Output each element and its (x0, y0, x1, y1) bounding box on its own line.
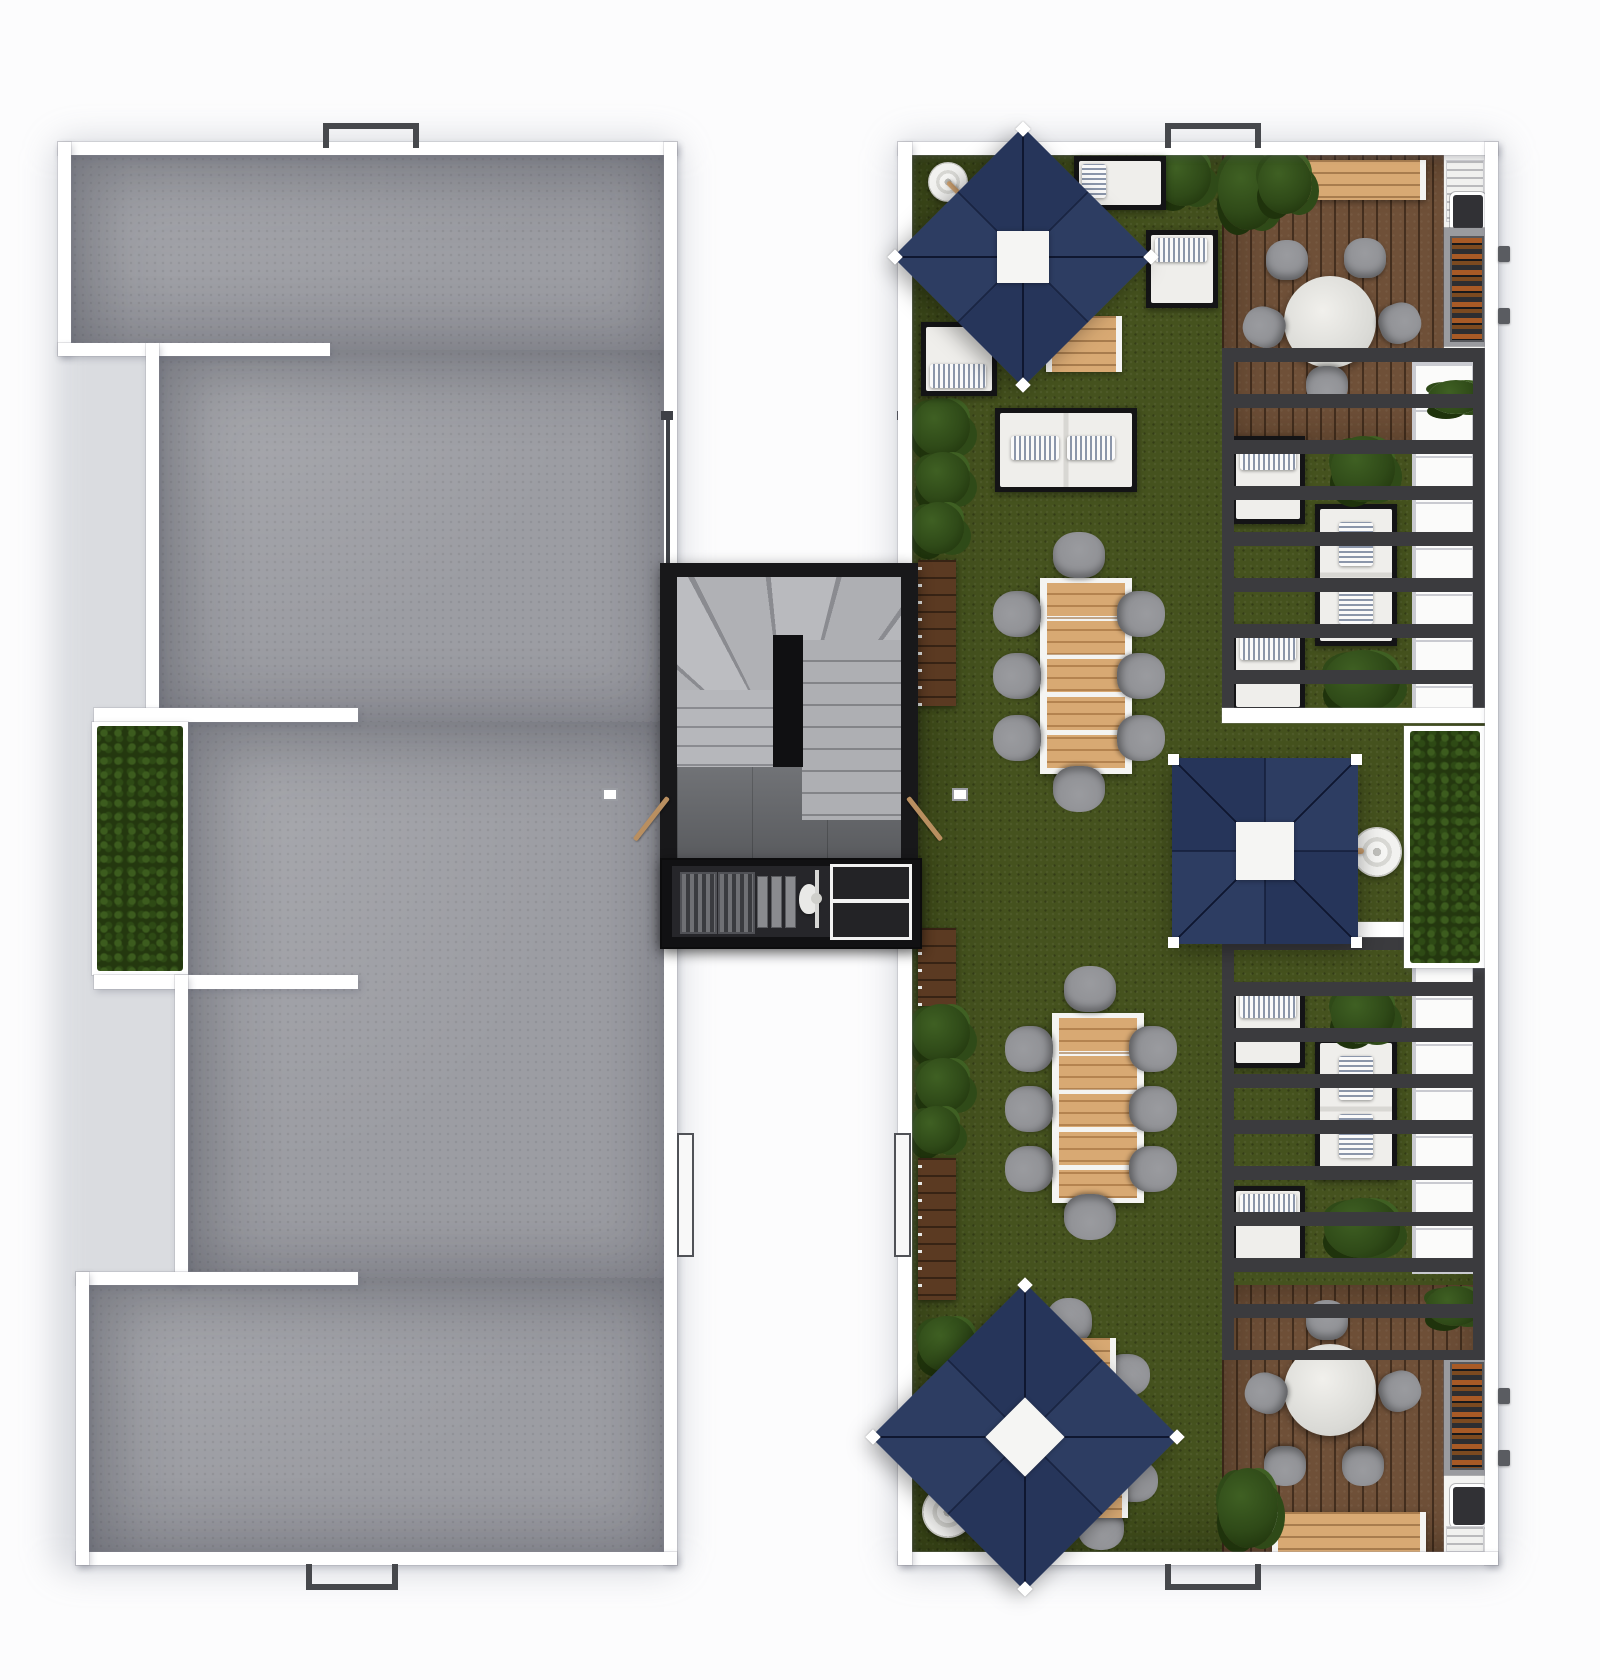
chair (1064, 966, 1116, 1012)
stair-spine-wall (773, 635, 803, 767)
planting-cluster (916, 1058, 970, 1112)
lounge-chair (1146, 230, 1218, 308)
east-building-east-wall (1485, 142, 1498, 1565)
west-building-west-wall-lower (76, 1272, 89, 1565)
grill-grate (718, 872, 755, 934)
chair (1117, 591, 1165, 637)
umbrella-tip (1168, 937, 1179, 948)
umbrella-tip (887, 249, 903, 265)
roof-hatch-marker (323, 123, 419, 148)
planting-cluster (912, 1004, 970, 1062)
chair (1005, 1146, 1053, 1192)
chair (1129, 1086, 1177, 1132)
concrete-roof-region-top (71, 155, 664, 350)
dark-wood-bench (918, 928, 956, 1006)
prep-station (830, 900, 912, 940)
roof-hatch-marker (1165, 1564, 1261, 1590)
chair (1344, 238, 1386, 278)
potted-plant (1218, 1468, 1278, 1548)
potted-plant (1258, 152, 1312, 214)
planting-cluster (912, 1106, 960, 1154)
south-deck-bench (1272, 1512, 1426, 1552)
umbrella-tip (1351, 937, 1362, 948)
chair (1064, 1194, 1116, 1240)
umbrella-vent (997, 231, 1049, 283)
south-kitchen-sink (1450, 1484, 1488, 1528)
east-hedge-planter-shrubs (1410, 731, 1480, 963)
west-hedge-planter-shrubs (97, 726, 183, 971)
west-facade-fin-1 (58, 343, 330, 356)
west-building-west-wall-3 (175, 975, 188, 1285)
umbrella-vent (985, 1397, 1064, 1476)
concrete-roof-region-bottom (89, 1278, 664, 1552)
dark-wood-bench (918, 560, 956, 706)
outdoor-loveseat (995, 408, 1137, 492)
chair (1005, 1026, 1053, 1072)
door-handle-west (602, 788, 618, 801)
lightwell-railing-west (666, 415, 670, 563)
north-pergola (1222, 348, 1485, 708)
east-facade-fitting (1498, 1388, 1510, 1404)
east-facade-fitting (1498, 308, 1510, 324)
striped-pillow (1067, 436, 1115, 460)
north-pergola-walkway (1222, 708, 1485, 723)
navy-umbrella-center (1172, 758, 1358, 944)
umbrella-tip (865, 1429, 881, 1445)
umbrella-tip (1168, 754, 1179, 765)
door-handle-east (952, 788, 968, 801)
west-facade-fin-3 (94, 975, 358, 989)
concrete-roof-region-upper (159, 350, 664, 722)
chair (1264, 1446, 1306, 1486)
planting-cluster (912, 502, 964, 554)
striped-pillow (1011, 436, 1059, 460)
grill-grate (680, 872, 717, 934)
dark-wood-bench (918, 1158, 956, 1300)
lightwell-door-west (677, 1133, 694, 1257)
umbrella-tip (1015, 121, 1031, 137)
north-kitchen-sink (1450, 192, 1486, 232)
grill-tool (757, 876, 768, 928)
chair (1129, 1146, 1177, 1192)
floorplan-canvas (0, 0, 1600, 1680)
south-pergola (1222, 936, 1485, 1360)
west-facade-fin-2 (94, 708, 358, 722)
west-facade-fin-4 (76, 1272, 358, 1285)
west-building-west-wall-2 (146, 343, 159, 722)
east-facade-fitting (1498, 1450, 1510, 1466)
chair (1053, 766, 1105, 812)
chair (1266, 240, 1308, 280)
lightwell-railing-post-west (661, 411, 673, 420)
chair (1005, 1086, 1053, 1132)
chair (993, 715, 1041, 761)
planting-cluster (916, 452, 970, 506)
chair (1053, 532, 1105, 578)
chair (1129, 1026, 1177, 1072)
west-building-west-wall-upper (58, 142, 71, 355)
lightwell-door-east (894, 1133, 911, 1257)
umbrella-tip (1351, 754, 1362, 765)
chair (1117, 715, 1165, 761)
stair-flight-left (677, 690, 775, 767)
counter-faucet-knob (811, 893, 822, 904)
grill-tool (785, 876, 796, 928)
chair (1342, 1446, 1384, 1486)
chair (1117, 653, 1165, 699)
north-bbq-grill-skewers (1450, 236, 1484, 342)
prep-station (830, 864, 912, 902)
striped-pillow (930, 364, 986, 388)
umbrella-vent (1236, 822, 1294, 880)
planting-cluster (912, 398, 970, 456)
stair-flight-right (802, 640, 901, 820)
chair (993, 653, 1041, 699)
roof-hatch-marker (1165, 123, 1261, 148)
south-bbq-grill-skewers (1450, 1362, 1484, 1470)
chair (993, 591, 1041, 637)
concrete-roof-region-mid (188, 722, 664, 1278)
grill-tool (771, 876, 782, 928)
east-facade-fitting (1498, 246, 1510, 262)
umbrella-tip (1017, 1581, 1033, 1597)
striped-pillow (1155, 238, 1207, 262)
roof-hatch-marker (306, 1564, 398, 1590)
south-kitchen-drainboard (1446, 1526, 1484, 1552)
